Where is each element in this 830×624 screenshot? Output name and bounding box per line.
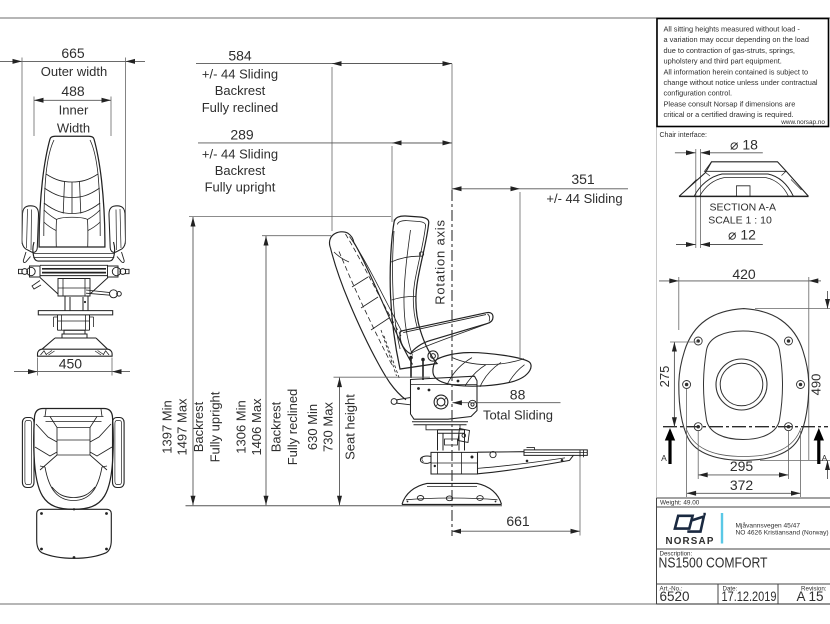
svg-text:Fully reclined: Fully reclined: [285, 389, 300, 466]
svg-text:490: 490: [809, 374, 824, 396]
svg-text:A 15: A 15: [796, 589, 823, 604]
svg-text:6520: 6520: [660, 589, 690, 604]
svg-text:Fully upright: Fully upright: [205, 180, 276, 195]
svg-text:Backrest: Backrest: [191, 401, 206, 452]
svg-text:⌀ 18: ⌀ 18: [730, 137, 758, 153]
svg-text:275: 275: [657, 366, 672, 388]
svg-text:due to contraction of gas-stru: due to contraction of gas-struts, spring…: [664, 46, 795, 55]
svg-text:Inner: Inner: [59, 103, 89, 118]
svg-text:Fully upright: Fully upright: [208, 391, 223, 462]
svg-text:295: 295: [730, 458, 754, 474]
svg-text:+/- 44 Sliding: +/- 44 Sliding: [202, 67, 278, 82]
svg-text:488: 488: [61, 83, 85, 99]
svg-text:88: 88: [510, 387, 526, 403]
svg-text:+/- 44 Sliding: +/- 44 Sliding: [202, 147, 278, 162]
svg-text:SECTION A-A: SECTION A-A: [710, 202, 777, 214]
svg-text:NORSAP: NORSAP: [665, 536, 714, 547]
svg-text:Backrest: Backrest: [215, 83, 266, 98]
svg-text:a variation may occur dependin: a variation may occur depending on the l…: [664, 35, 809, 44]
svg-text:All sitting heights measured w: All sitting heights measured without loa…: [664, 25, 801, 34]
svg-text:Backrest: Backrest: [269, 401, 284, 452]
svg-text:A: A: [822, 453, 828, 463]
svg-text:Total Sliding: Total Sliding: [483, 408, 553, 423]
svg-text:Seat height: Seat height: [343, 394, 358, 460]
svg-text:All information herein contain: All information herein contained is subj…: [664, 67, 809, 76]
svg-text:change without notice unless u: change without notice unless under contr…: [664, 78, 818, 87]
svg-text:Rotation axis: Rotation axis: [433, 219, 448, 305]
svg-text:1497 Max: 1497 Max: [175, 398, 190, 456]
svg-text:Please consult Norsap if dimen: Please consult Norsap if dimensions are: [664, 99, 796, 108]
svg-text:Fully reclined: Fully reclined: [202, 100, 279, 115]
svg-text:NS1500 COMFORT: NS1500 COMFORT: [659, 556, 768, 572]
svg-text:configuration control.: configuration control.: [664, 89, 733, 98]
svg-text:351: 351: [571, 171, 595, 187]
svg-text:372: 372: [730, 477, 754, 493]
svg-text:+/- 44 Sliding: +/- 44 Sliding: [546, 191, 622, 206]
svg-text:665: 665: [61, 45, 85, 61]
svg-text:730 Max: 730 Max: [321, 402, 336, 452]
svg-text:NO 4626 Kristiansand (Norway): NO 4626 Kristiansand (Norway): [736, 530, 829, 537]
svg-text:1306 Min: 1306 Min: [234, 400, 249, 453]
svg-text:630 Min: 630 Min: [305, 404, 320, 450]
svg-text:upholstery and third part equi: upholstery and third part equipment.: [664, 57, 782, 66]
svg-text:⌀ 12: ⌀ 12: [728, 227, 756, 243]
svg-text:17.12.2019: 17.12.2019: [722, 589, 777, 604]
svg-text:661: 661: [506, 513, 530, 529]
svg-text:critical or a certified drawin: critical or a certified drawing is requi…: [664, 110, 794, 119]
svg-text:Chair interface:: Chair interface:: [660, 132, 708, 139]
svg-text:SCALE 1 : 10: SCALE 1 : 10: [708, 215, 772, 227]
svg-text:289: 289: [230, 127, 254, 143]
svg-text:1406 Max: 1406 Max: [249, 398, 264, 456]
svg-text:A: A: [661, 453, 667, 463]
svg-text:Weight: 49.00: Weight: 49.00: [660, 500, 700, 507]
svg-text:1397 Min: 1397 Min: [160, 400, 175, 453]
svg-text:420: 420: [732, 266, 756, 282]
svg-text:450: 450: [59, 356, 83, 372]
svg-text:Mjåvannsvegen 45/47: Mjåvannsvegen 45/47: [736, 522, 801, 530]
svg-text:584: 584: [228, 48, 252, 64]
svg-text:Width: Width: [57, 121, 90, 136]
svg-text:www.norsap.no: www.norsap.no: [780, 119, 825, 126]
svg-text:Backrest: Backrest: [215, 163, 266, 178]
svg-text:Outer width: Outer width: [41, 64, 107, 79]
